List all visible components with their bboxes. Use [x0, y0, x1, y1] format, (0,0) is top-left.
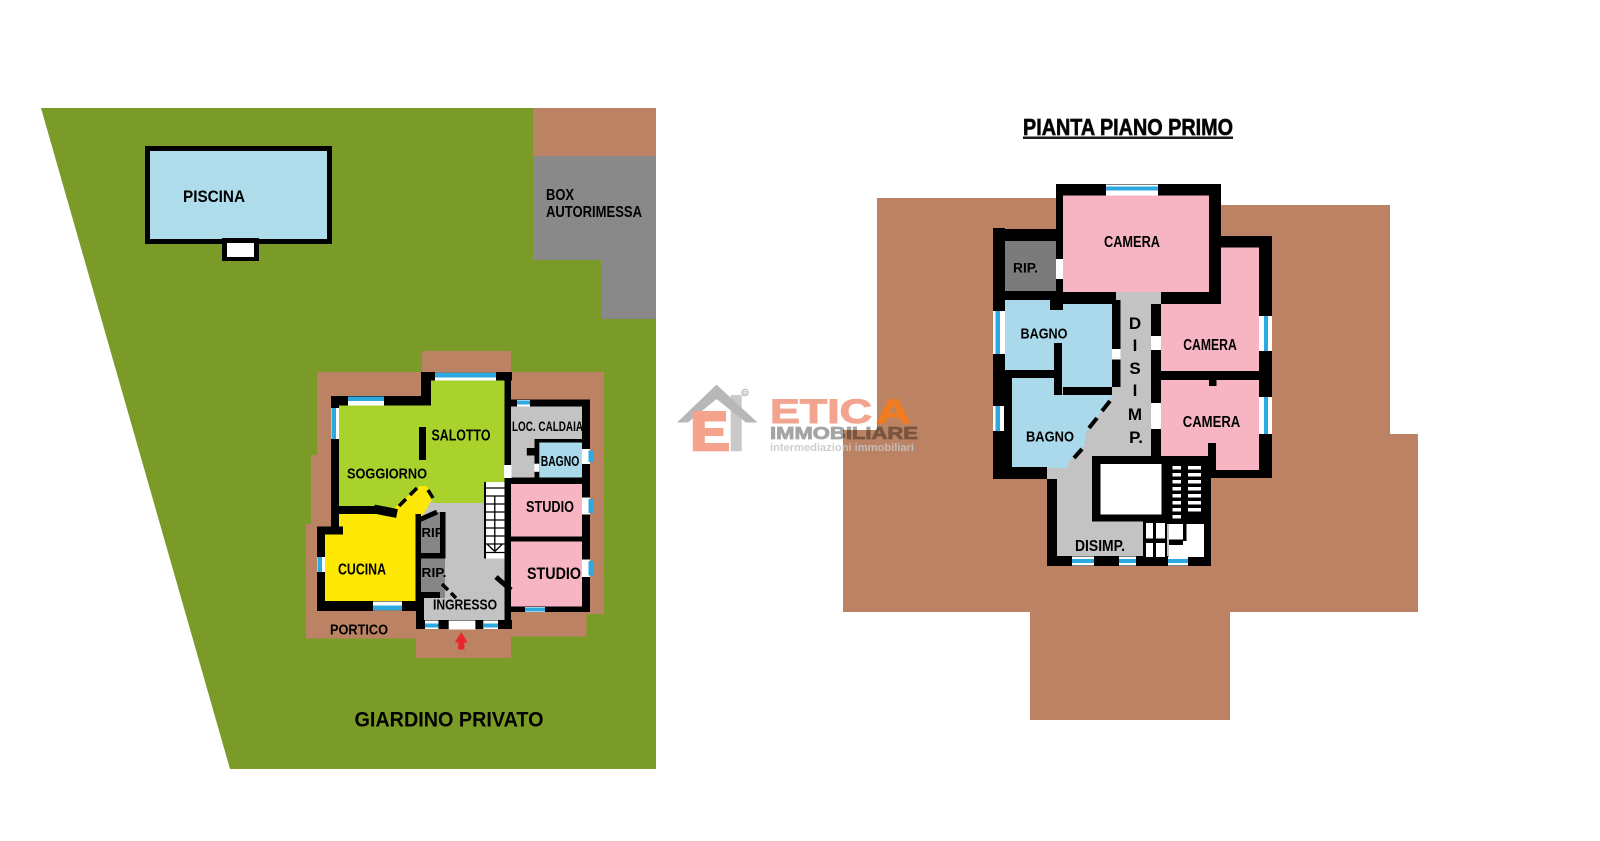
svg-text:P.: P.	[1129, 428, 1143, 447]
svg-text:STUDIO: STUDIO	[526, 499, 574, 516]
svg-text:PISCINA: PISCINA	[183, 188, 245, 206]
svg-text:I: I	[1133, 381, 1138, 400]
svg-text:CAMERA: CAMERA	[1183, 337, 1237, 354]
svg-text:M: M	[1128, 405, 1142, 424]
svg-text:DISIMP.: DISIMP.	[1075, 538, 1125, 555]
svg-text:CUCINA: CUCINA	[338, 562, 386, 579]
svg-text:STUDIO: STUDIO	[527, 565, 581, 583]
svg-text:PORTICO: PORTICO	[330, 622, 388, 639]
svg-text:CAMERA: CAMERA	[1183, 414, 1241, 431]
svg-text:BAGNO: BAGNO	[1026, 429, 1074, 446]
svg-text:INGRESSO: INGRESSO	[433, 597, 497, 614]
svg-text:CAMERA: CAMERA	[1104, 234, 1160, 251]
svg-text:SALOTTO: SALOTTO	[432, 428, 491, 445]
svg-text:PIANTA PIANO PRIMO: PIANTA PIANO PRIMO	[1023, 114, 1233, 140]
svg-text:RIP.: RIP.	[1013, 261, 1038, 276]
svg-text:I: I	[1133, 336, 1138, 355]
svg-text:D: D	[1129, 314, 1141, 333]
svg-text:SOGGIORNO: SOGGIORNO	[347, 466, 427, 483]
svg-text:S: S	[1129, 359, 1140, 378]
svg-text:RIP.: RIP.	[422, 525, 446, 540]
svg-text:R: R	[743, 391, 747, 397]
svg-text:LOC. CALDAIA: LOC. CALDAIA	[512, 419, 583, 434]
svg-text:IMMOBILIARE: IMMOBILIARE	[770, 423, 918, 443]
svg-text:AUTORIMESSA: AUTORIMESSA	[546, 204, 642, 221]
svg-text:BOX: BOX	[546, 187, 575, 204]
svg-text:BAGNO: BAGNO	[541, 454, 580, 470]
svg-text:RIP.: RIP.	[422, 565, 447, 580]
svg-text:GIARDINO PRIVATO: GIARDINO PRIVATO	[355, 709, 544, 732]
svg-text:intermediazioni immobiliari: intermediazioni immobiliari	[770, 442, 914, 454]
svg-text:BAGNO: BAGNO	[1021, 326, 1068, 343]
